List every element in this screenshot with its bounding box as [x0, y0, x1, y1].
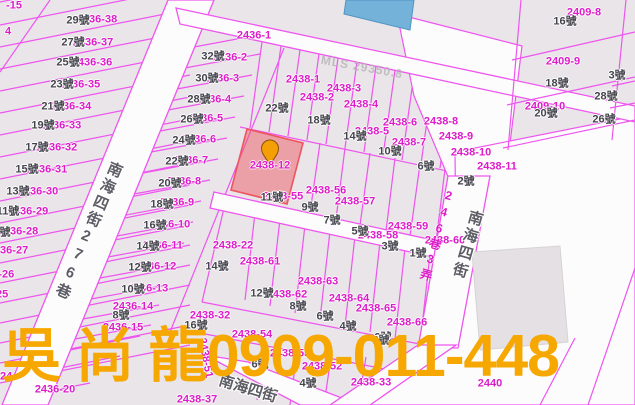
parcel-label: 2436-10 — [150, 220, 190, 231]
parcel-label: 2409-9 — [546, 57, 580, 68]
parcel-label: 2436-2 — [213, 53, 247, 64]
house-number-label: 6號 — [316, 312, 333, 323]
house-number-label: 18號 — [150, 200, 173, 211]
parcel-label: 2409-10 — [525, 102, 565, 113]
parcel-label: 2436-3 — [205, 74, 239, 85]
parcel-label: 2436-31 — [27, 165, 67, 176]
house-number-label: 7號 — [323, 216, 340, 227]
house-number-label: 14號 — [343, 132, 366, 143]
parcel-label: 2438-9 — [439, 132, 473, 143]
parcel-label: 2438-1 — [286, 75, 320, 86]
parcel-label: 2438-61 — [240, 257, 280, 268]
parcel-label: 2438-7 — [392, 138, 426, 149]
house-number-label: 6號 — [417, 162, 434, 173]
house-number-label: 29號 — [66, 16, 89, 27]
parcel-label: 2436-34 — [51, 102, 91, 113]
parcel-label: 2436-12 — [136, 262, 176, 273]
house-number-label: 21號 — [41, 102, 64, 113]
parcel-label: 2438-62 — [267, 290, 307, 301]
street-name-label: 南海四街 — [450, 208, 484, 281]
parcel-label: 2436-4 — [197, 95, 231, 106]
parcel-label: 2436-6 — [182, 135, 216, 146]
cadastral-map-view[interactable]: -1542436-382436-372436-362436-352436-342… — [0, 0, 635, 405]
parcel-label: 2438-58 — [358, 231, 398, 242]
parcel-label: 2438-32 — [190, 311, 230, 322]
agent-watermark-text: 吳 尚 龍0909-011-448 — [2, 326, 635, 388]
parcel-label: 2438-11 — [477, 162, 517, 173]
parcel-label: 2438-64 — [329, 294, 369, 305]
parcel-label: 2438-57 — [335, 197, 375, 208]
parcel-label: 2436-37 — [73, 38, 113, 49]
house-number-label: 25號 — [56, 58, 79, 69]
parcel-label: -15 — [6, 1, 22, 12]
parcel-label: 2438-3 — [327, 84, 361, 95]
house-number-label: 10號 — [121, 285, 144, 296]
house-number-label: 26號 — [592, 115, 615, 126]
house-number-label: 30號 — [195, 74, 218, 85]
parcel-label: 2436-28 — [0, 227, 38, 238]
house-number-label: 20號 — [534, 109, 557, 120]
parcel-label: 2436-14 — [113, 302, 153, 313]
house-number-label: 14號 — [205, 262, 228, 273]
parcel-label: 2436-9 — [160, 198, 194, 209]
house-number-label: 28號 — [187, 95, 210, 106]
parcel-label: 2436-7 — [174, 156, 208, 167]
house-number-label: 9號 — [301, 203, 318, 214]
parcel-label: 2438-37 — [177, 395, 217, 405]
house-number-label: 16號 — [143, 221, 166, 232]
parcel-label: 2436-5 — [189, 114, 223, 125]
parcel-label: 2436-26 — [0, 270, 14, 281]
house-number-label: 2號 — [457, 177, 474, 188]
parcel-label: 2436-38 — [77, 15, 117, 26]
parcel-label: 2436-35 — [60, 80, 100, 91]
house-number-label: 3號 — [381, 242, 398, 253]
parcel-label: 2436-29 — [8, 207, 48, 218]
parcel-label: 2409-8 — [567, 8, 601, 19]
house-number-label: 14號 — [136, 242, 159, 253]
house-number-label: 11號 — [261, 193, 284, 204]
house-number-label: 22號 — [165, 157, 188, 168]
house-number-label: 10號 — [378, 147, 401, 158]
house-number-label: 9號 — [0, 228, 11, 239]
parcel-label: 2438-8 — [424, 117, 458, 128]
parcel-label: 2438-10 — [451, 148, 491, 159]
parcel-label: 2438-4 — [344, 100, 378, 111]
house-number-label: 15號 — [15, 165, 38, 176]
parcel-label: 2436-33 — [41, 121, 81, 132]
house-number-label: 3號 — [608, 71, 625, 82]
parcel-label: 2438-6 — [383, 118, 417, 129]
parcel-label: 2438-56 — [306, 186, 346, 197]
house-number-label: 18號 — [307, 116, 330, 127]
house-number-label: 32號 — [201, 52, 224, 63]
house-number-label: 12號 — [128, 263, 151, 274]
house-number-label: 27號 — [61, 38, 84, 49]
house-number-label: 18號 — [545, 79, 568, 90]
parcel-label: 2436-27 — [0, 246, 28, 257]
house-number-label: 11號 — [0, 207, 19, 218]
parcel-label: 2436-13 — [128, 284, 168, 295]
house-number-label: 28號 — [594, 92, 617, 103]
house-number-label: 12號 — [250, 289, 273, 300]
parcel-label: 2436-11 — [143, 241, 183, 252]
house-number-label: 5號 — [351, 227, 368, 238]
house-number-label: 19號 — [31, 121, 54, 132]
house-number-label: 26號 — [180, 115, 203, 126]
parcel-label: 2438-55 — [263, 192, 303, 203]
parcel-label: 2436-36 — [72, 58, 112, 69]
parcel-label: 2438-5 — [355, 127, 389, 138]
parcel-label: 2436-30 — [18, 187, 58, 198]
house-number-label: 1號 — [409, 249, 426, 260]
parcel-label: 2436-8 — [167, 177, 201, 188]
parcel-label: 2436-25 — [0, 290, 8, 301]
parcel-label: 4 — [5, 27, 11, 38]
parcel-label: 2438-63 — [298, 277, 338, 288]
parcel-label: 2436-32 — [37, 143, 77, 154]
house-number-label: 16號 — [553, 17, 576, 28]
mls-watermark: MLS 29350.8 — [320, 54, 404, 80]
parcel-label: 2438-60 — [425, 236, 465, 247]
house-number-label: 8號 — [112, 311, 129, 322]
house-number-label: 8號 — [289, 302, 306, 313]
house-number-label: 24號 — [172, 136, 195, 147]
parcel-label: 2438-12 — [250, 161, 290, 172]
house-number-label: 13號 — [6, 187, 29, 198]
street-name-label: 南海四街276巷 — [52, 159, 124, 303]
lane-name-label: 246巷3弄 — [418, 187, 457, 285]
house-number-label: 20號 — [158, 179, 181, 190]
house-number-label: 17號 — [25, 143, 48, 154]
house-number-label: 23號 — [50, 80, 73, 91]
parcel-label: 2438-22 — [213, 241, 253, 252]
house-number-label: 22號 — [265, 104, 288, 115]
parcel-label: 2438-65 — [356, 304, 396, 315]
parcel-label: 2438-2 — [300, 93, 334, 104]
parcel-label: 2436-1 — [237, 31, 271, 42]
parcel-label: 2438-59 — [388, 222, 428, 233]
